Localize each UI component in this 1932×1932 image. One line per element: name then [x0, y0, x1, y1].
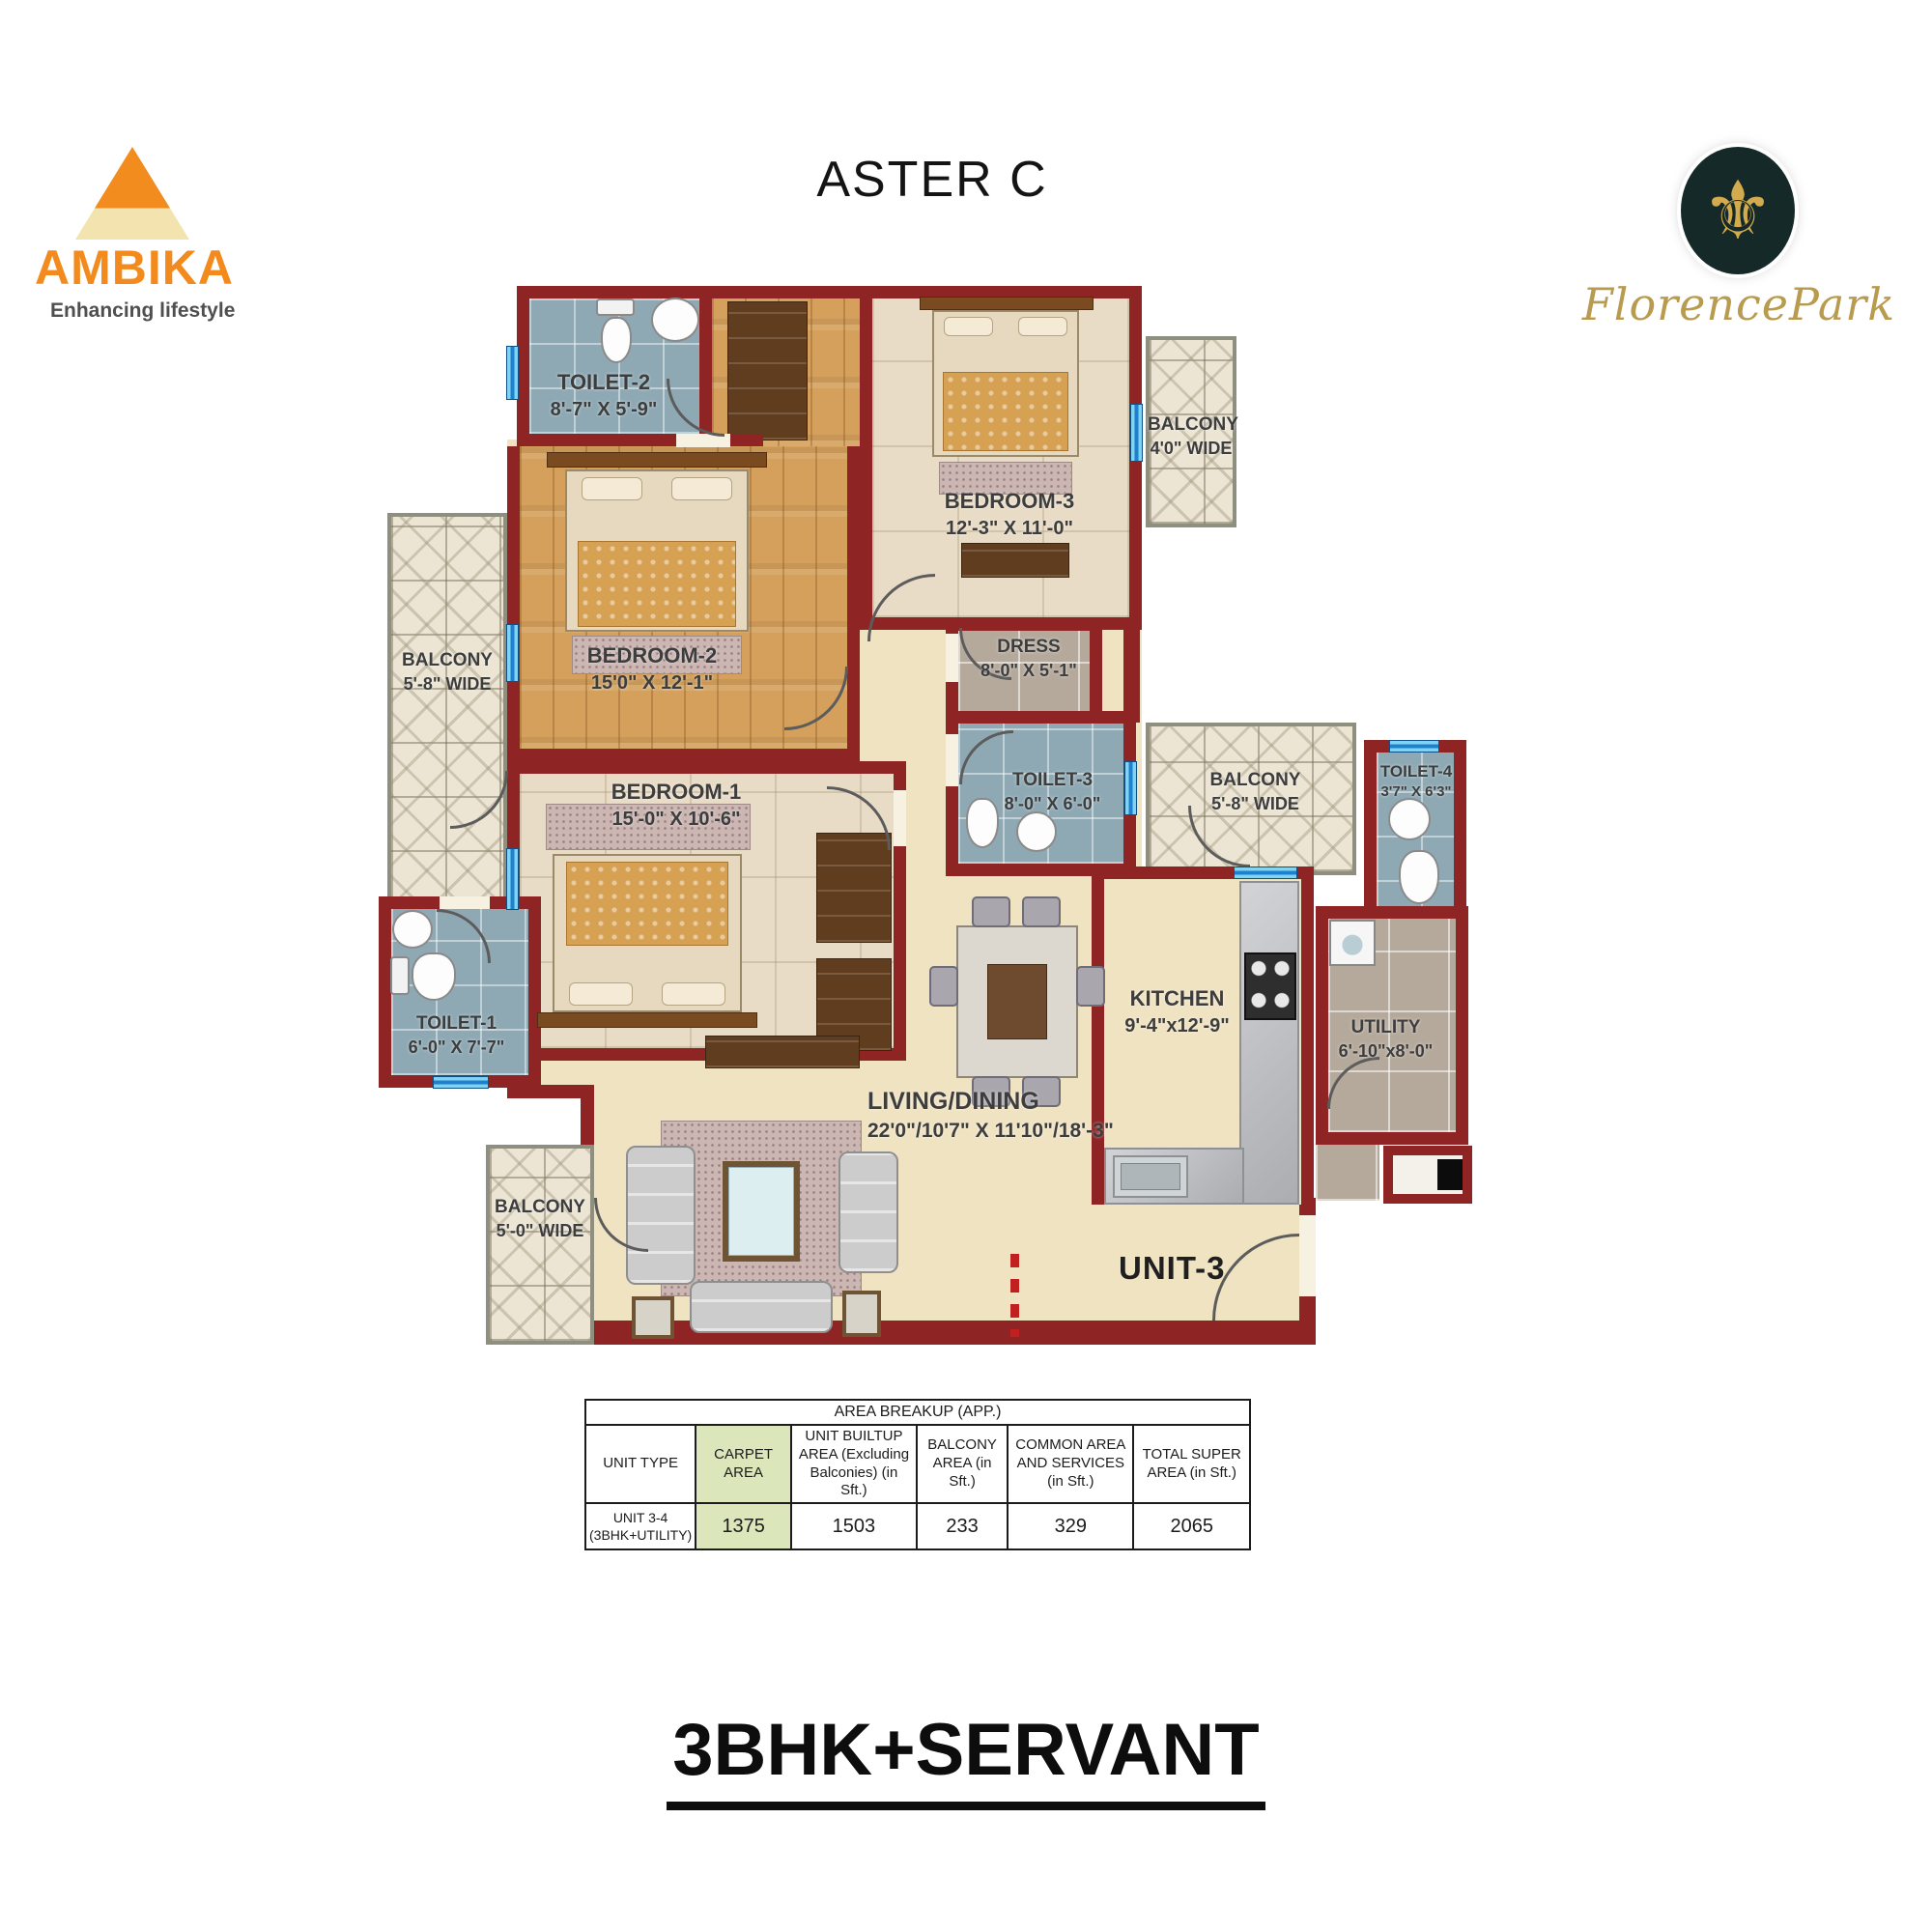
room-label-toilet-2: TOILET-28'-7" X 5'-9" — [526, 369, 681, 422]
bed-headboard — [920, 297, 1094, 310]
wc-tank — [390, 956, 410, 995]
washbasin — [651, 298, 699, 342]
ambika-wordmark: AMBIKA — [35, 240, 234, 296]
door-gap — [440, 896, 490, 909]
side-table — [632, 1296, 674, 1339]
cell-total-super-area: 2065 — [1133, 1503, 1250, 1549]
window-marker — [1389, 740, 1439, 753]
room-label-balcony-left: BALCONY5'-8" WIDE — [394, 649, 500, 696]
cell-common-area: 329 — [1008, 1503, 1133, 1549]
door-gap — [946, 734, 958, 786]
ambika-tagline: Enhancing lifestyle — [50, 299, 235, 323]
col-header-balcony-area: BALCONY AREA (in Sft.) — [917, 1425, 1008, 1503]
cell-unit-type: UNIT 3-4 (3BHK+UTILITY) — [585, 1503, 696, 1549]
dining-chair — [1076, 966, 1105, 1007]
window-marker — [1124, 761, 1137, 815]
door-gap — [946, 634, 958, 682]
unit-configuration-title: 3BHK+SERVANT — [0, 1708, 1932, 1810]
window-marker — [506, 848, 519, 910]
dining-table-center — [987, 964, 1047, 1039]
floor-plan-page: AMBIKA Enhancing lifestyle ASTER C ⚜ Flo… — [0, 0, 1932, 1932]
room-label-balcony-top-right: BALCONY4'0" WIDE — [1148, 413, 1235, 460]
room-label-dress: DRESS8'-0" X 5'-1" — [961, 636, 1096, 682]
door-gap — [1299, 1215, 1316, 1296]
wc — [1399, 850, 1439, 904]
tv-cabinet — [705, 1036, 860, 1068]
dining-chair — [929, 966, 958, 1007]
room-label-living-dining: LIVING/DINING 22'0"/10'7" X 11'10"/18'-3… — [867, 1086, 1138, 1144]
cell-carpet-area: 1375 — [696, 1503, 791, 1549]
wc — [601, 317, 632, 363]
bed-headboard — [547, 452, 767, 468]
window-marker — [433, 1076, 489, 1089]
room-balcony-bottom — [486, 1145, 594, 1345]
washbasin — [1016, 811, 1057, 852]
room-label-bedroom-3: BEDROOM-312'-3" X 11'-0" — [908, 488, 1111, 541]
room-label-toilet-4: TOILET-43'7" X 6'3" — [1370, 761, 1463, 802]
room-label-toilet-1: TOILET-16'-0" X 7'-7" — [386, 1012, 526, 1059]
kitchen-sink — [1113, 1155, 1188, 1198]
page-title: ASTER C — [739, 151, 1125, 209]
table-title: AREA BREAKUP (APP.) — [585, 1400, 1250, 1425]
table-row: UNIT 3-4 (3BHK+UTILITY) 1375 1503 233 32… — [585, 1503, 1250, 1549]
fleur-de-lis-icon: ⚜ — [1701, 170, 1774, 251]
florence-park-wordmark: FlorencePark — [1565, 278, 1913, 330]
door-gap — [894, 790, 906, 846]
col-header-common-area: COMMON AREA AND SERVICES (in Sft.) — [1008, 1425, 1133, 1503]
washbasin — [1388, 798, 1431, 840]
cell-builtup-area: 1503 — [791, 1503, 917, 1549]
washing-machine — [1329, 920, 1376, 966]
sofa — [838, 1151, 898, 1273]
col-header-unit-type: UNIT TYPE — [585, 1425, 696, 1503]
wardrobe — [727, 301, 808, 440]
washbasin — [392, 910, 433, 949]
room-label-toilet-3: TOILET-38'-0" X 6'-0" — [987, 769, 1118, 815]
double-bed — [932, 310, 1079, 457]
center-table — [723, 1161, 800, 1262]
col-header-carpet-area: CARPET AREA — [696, 1425, 791, 1503]
window-marker — [506, 346, 519, 400]
ambika-triangle-icon — [75, 147, 189, 240]
gas-stove — [1244, 952, 1296, 1020]
double-bed — [553, 854, 742, 1012]
col-header-total-super-area: TOTAL SUPER AREA (in Sft.) — [1133, 1425, 1250, 1503]
dining-chair — [1022, 896, 1061, 927]
window-marker — [1130, 404, 1143, 462]
shaft — [1437, 1159, 1463, 1190]
kitchen-counter — [1239, 881, 1299, 1205]
wall-segment — [1123, 618, 1140, 723]
service-lobby — [1316, 1145, 1379, 1201]
stair-lobby — [1383, 1146, 1472, 1204]
bed-headboard — [537, 1012, 757, 1028]
room-label-balcony-mid-right: BALCONY5'-8" WIDE — [1200, 769, 1311, 815]
cell-balcony-area: 233 — [917, 1503, 1008, 1549]
table-header-row: UNIT TYPE CARPET AREA UNIT BUILTUP AREA … — [585, 1425, 1250, 1503]
col-header-builtup-area: UNIT BUILTUP AREA (Excluding Balconies) … — [791, 1425, 917, 1503]
tv-cabinet — [961, 543, 1069, 578]
area-breakup-table: AREA BREAKUP (APP.) UNIT TYPE CARPET ARE… — [584, 1399, 1251, 1550]
room-label-bedroom-2: BEDROOM-215'0" X 12'-1" — [551, 642, 753, 696]
room-label-bedroom-1: BEDROOM-115'-0" X 10'-6" — [570, 779, 782, 832]
room-label-kitchen: KITCHEN9'-4"x12'-9" — [1107, 985, 1247, 1038]
dining-chair — [972, 896, 1010, 927]
florence-park-emblem: ⚜ — [1681, 147, 1795, 274]
room-label-utility: UTILITY6'-10"x8'-0" — [1325, 1016, 1446, 1063]
double-bed — [565, 469, 749, 632]
side-table — [842, 1291, 881, 1337]
sofa — [690, 1281, 833, 1333]
room-label-balcony-bottom: BALCONY5'-0" WIDE — [489, 1196, 591, 1242]
wc-tank — [596, 298, 635, 316]
entry-dash-line — [1010, 1254, 1019, 1337]
window-marker — [506, 624, 519, 682]
unit-label: UNIT-3 — [1119, 1250, 1226, 1287]
wall-segment — [699, 286, 873, 298]
window-marker — [1234, 867, 1297, 879]
